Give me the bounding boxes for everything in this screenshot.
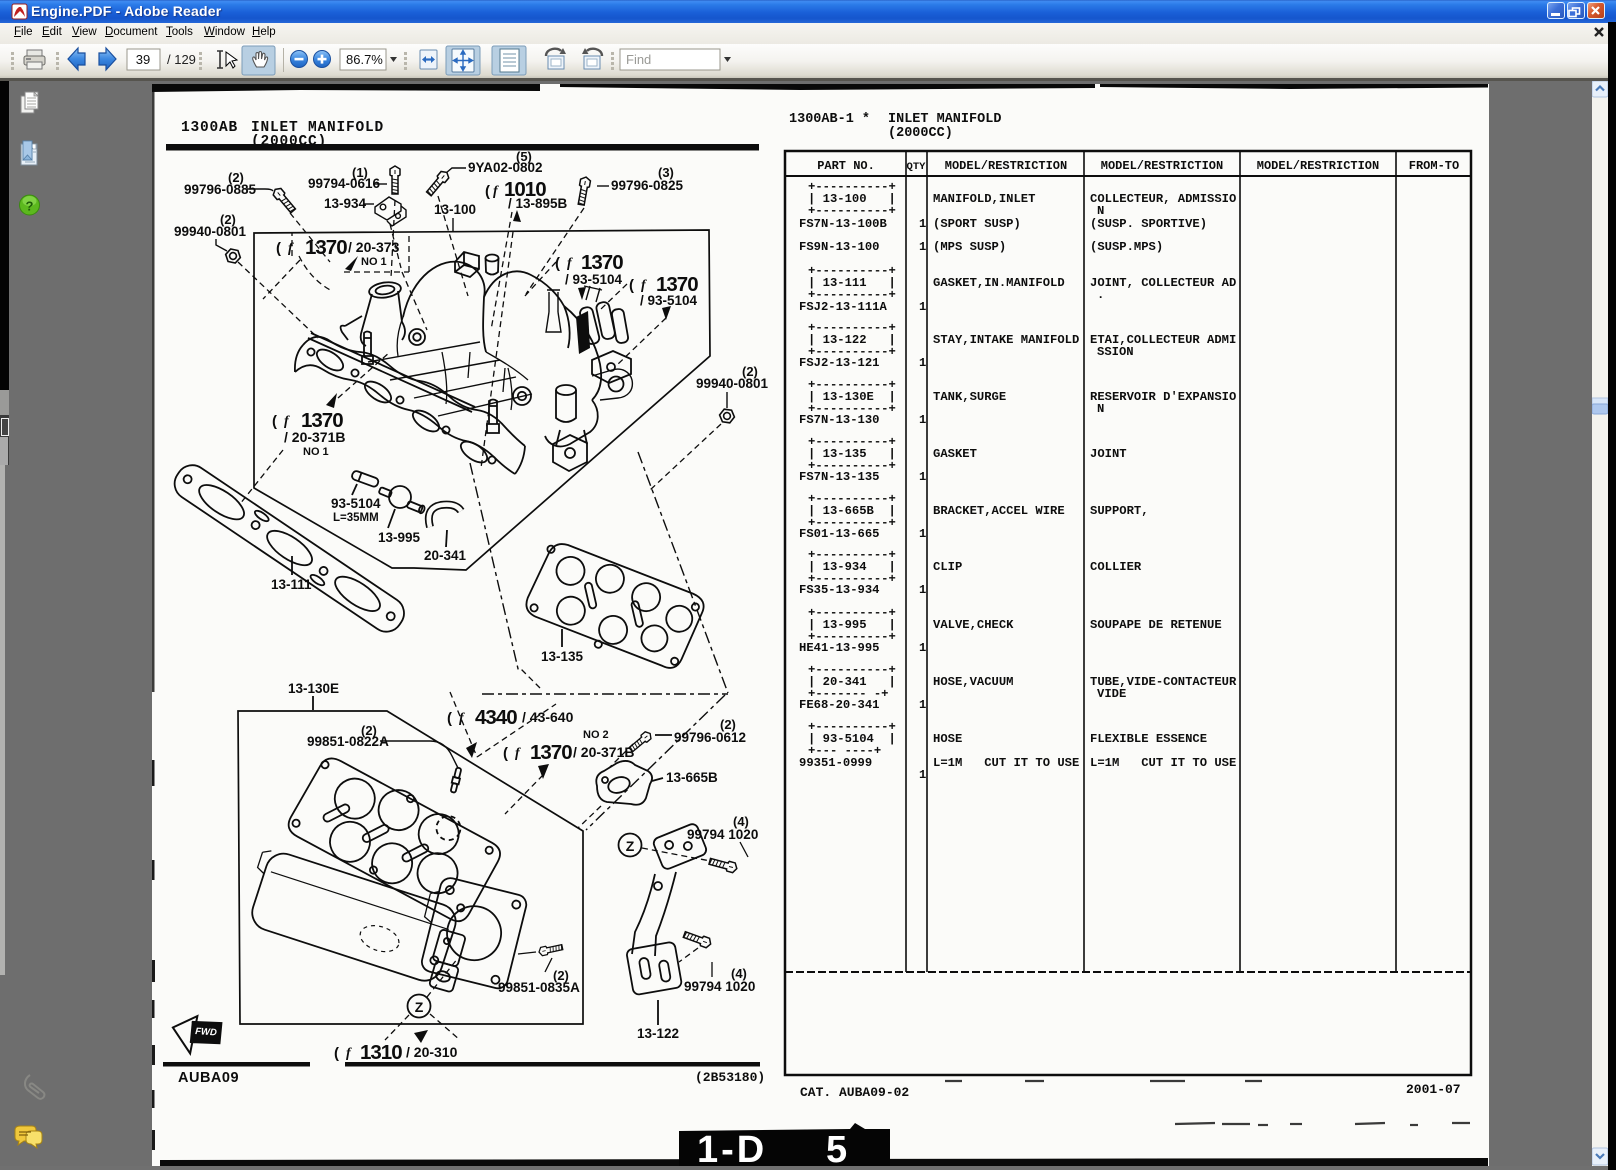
svg-text:FSJ2-13-121: FSJ2-13-121 — [799, 356, 879, 370]
svg-text:+----------+: +----------+ — [808, 204, 896, 218]
svg-text:BRACKET,ACCEL WIRE: BRACKET,ACCEL WIRE — [933, 504, 1065, 518]
svg-text:1370: 1370 — [581, 251, 623, 274]
svg-text:1: 1 — [919, 217, 926, 231]
svg-text:NO 1: NO 1 — [361, 256, 387, 268]
svg-text:JOINT, COLLECTEUR AD: JOINT, COLLECTEUR AD — [1090, 276, 1236, 290]
svg-text:13-135: 13-135 — [541, 649, 584, 664]
svg-text:FS7N-13-130: FS7N-13-130 — [799, 413, 879, 427]
svg-text:L=35MM: L=35MM — [333, 512, 379, 524]
svg-text:VIDE: VIDE — [1097, 687, 1126, 701]
svg-text:/ 13-895B: / 13-895B — [508, 196, 568, 211]
svg-text:1: 1 — [919, 300, 926, 314]
svg-text:COLLIER: COLLIER — [1090, 560, 1142, 574]
svg-text:1300AB: 1300AB — [181, 120, 238, 136]
svg-text:N: N — [1097, 204, 1104, 218]
svg-text:99851-0835A: 99851-0835A — [498, 980, 580, 995]
svg-text:(MPS SUSP): (MPS SUSP) — [933, 240, 1006, 254]
svg-text:(: ( — [503, 745, 508, 762]
svg-text:/ 20-310: / 20-310 — [406, 1044, 458, 1060]
svg-text:VALVE,CHECK: VALVE,CHECK — [933, 618, 1014, 632]
svg-text:MODEL/RESTRICTION: MODEL/RESTRICTION — [1257, 159, 1379, 173]
svg-text:9YA02-0802: 9YA02-0802 — [468, 160, 543, 175]
svg-text:FLEXIBLE ESSENCE: FLEXIBLE ESSENCE — [1090, 732, 1207, 746]
svg-text:1370: 1370 — [530, 741, 572, 764]
svg-text:MODEL/RESTRICTION: MODEL/RESTRICTION — [1101, 159, 1223, 173]
svg-text:Z: Z — [415, 999, 424, 1015]
svg-text:FS35-13-934: FS35-13-934 — [799, 583, 879, 597]
svg-text:(SUSP. SPORTIVE): (SUSP. SPORTIVE) — [1090, 217, 1207, 231]
svg-text:L=1M CUT IT TO USE: L=1M CUT IT TO USE — [1090, 756, 1236, 770]
svg-text:FS7N-13-135: FS7N-13-135 — [799, 470, 879, 484]
svg-text:STAY,INTAKE MANIFOLD: STAY,INTAKE MANIFOLD — [933, 333, 1079, 347]
svg-text:99796-0612: 99796-0612 — [674, 730, 746, 745]
svg-text:HOSE,VACUUM: HOSE,VACUUM — [933, 675, 1013, 689]
svg-text:SSION: SSION — [1097, 345, 1134, 359]
svg-text:1: 1 — [919, 641, 926, 655]
svg-text:f: f — [459, 711, 465, 726]
svg-text:/ 93-5104: / 93-5104 — [565, 272, 623, 287]
svg-text:4340: 4340 — [475, 706, 517, 729]
svg-text:/ 20-371B: / 20-371B — [284, 429, 345, 445]
svg-text:f: f — [567, 256, 573, 271]
svg-text:(SUSP.MPS): (SUSP.MPS) — [1090, 240, 1163, 254]
svg-text:1-D: 1-D — [697, 1129, 767, 1170]
svg-text:CLIP: CLIP — [933, 560, 962, 574]
svg-text:13-665B: 13-665B — [666, 770, 718, 785]
svg-text:1: 1 — [919, 413, 926, 427]
svg-text:RESERVOIR D'EXPANSIO: RESERVOIR D'EXPANSIO — [1090, 390, 1236, 404]
svg-text:13-122: 13-122 — [637, 1026, 679, 1041]
svg-text:(: ( — [276, 240, 281, 257]
svg-text:FS7N-13-100B: FS7N-13-100B — [799, 217, 887, 231]
svg-text:93-5104: 93-5104 — [331, 496, 381, 511]
svg-text:5: 5 — [826, 1129, 847, 1170]
svg-text:FE68-20-341: FE68-20-341 — [799, 698, 879, 712]
svg-text:1: 1 — [919, 768, 926, 782]
svg-text:1: 1 — [919, 470, 926, 484]
svg-text:(2B53180): (2B53180) — [695, 1070, 765, 1085]
svg-text:/ 93-5104: / 93-5104 — [640, 293, 698, 308]
svg-text:2001-07: 2001-07 — [1406, 1082, 1461, 1097]
svg-text:GASKET,IN.MANIFOLD: GASKET,IN.MANIFOLD — [933, 276, 1065, 290]
svg-text:FS01-13-665: FS01-13-665 — [799, 527, 879, 541]
svg-text:MODEL/RESTRICTION: MODEL/RESTRICTION — [945, 159, 1067, 173]
svg-text:f: f — [288, 241, 294, 256]
svg-text:INLET MANIFOLD: INLET MANIFOLD — [888, 112, 1001, 127]
svg-text:13-130E: 13-130E — [288, 681, 339, 696]
svg-text:f: f — [493, 184, 499, 199]
svg-text:99796-0825: 99796-0825 — [611, 178, 684, 193]
svg-text:(: ( — [629, 277, 634, 294]
svg-text:13-995: 13-995 — [378, 530, 421, 545]
svg-text:99940-0801: 99940-0801 — [696, 376, 769, 391]
svg-text:1300AB-1 *: 1300AB-1 * — [789, 112, 870, 127]
svg-text:13-100: 13-100 — [434, 202, 476, 217]
svg-text:/ 43-640: / 43-640 — [522, 709, 574, 725]
svg-text:1310: 1310 — [360, 1041, 402, 1064]
svg-text:1: 1 — [919, 583, 926, 597]
svg-text:NO 1: NO 1 — [303, 446, 329, 458]
svg-text:(2000CC): (2000CC) — [888, 126, 953, 141]
svg-text:SUPPORT,: SUPPORT, — [1090, 504, 1149, 518]
svg-text:1: 1 — [919, 698, 926, 712]
svg-text:(: ( — [447, 710, 452, 727]
svg-text:(: ( — [555, 255, 560, 272]
svg-text:COLLECTEUR, ADMISSIO: COLLECTEUR, ADMISSIO — [1090, 192, 1236, 206]
svg-text:99351-0999: 99351-0999 — [799, 756, 872, 770]
svg-text:Z: Z — [626, 838, 635, 854]
svg-text:1: 1 — [919, 240, 926, 254]
svg-text:f: f — [641, 278, 647, 293]
svg-text:FSJ2-13-111A: FSJ2-13-111A — [799, 300, 887, 314]
svg-text:99796-0885: 99796-0885 — [184, 182, 257, 197]
svg-text:SOUPAPE DE RETENUE: SOUPAPE DE RETENUE — [1090, 618, 1222, 632]
svg-text:1: 1 — [919, 356, 926, 370]
svg-text:FROM-TO: FROM-TO — [1409, 159, 1459, 173]
svg-text:JOINT: JOINT — [1090, 447, 1127, 461]
svg-text:PART NO.: PART NO. — [817, 159, 875, 173]
svg-text:AUBA09: AUBA09 — [178, 1070, 239, 1086]
svg-text:(: ( — [334, 1045, 339, 1062]
svg-text:13-111: 13-111 — [271, 577, 312, 592]
svg-text:GASKET: GASKET — [933, 447, 977, 461]
svg-text:HOSE: HOSE — [933, 732, 962, 746]
svg-text:MANIFOLD,INLET: MANIFOLD,INLET — [933, 192, 1035, 206]
svg-text:99940-0801: 99940-0801 — [174, 224, 247, 239]
svg-text:20-341: 20-341 — [424, 548, 467, 563]
svg-text:QTY: QTY — [907, 161, 927, 173]
svg-text:CAT. AUBA09-02: CAT. AUBA09-02 — [800, 1085, 909, 1100]
svg-text:f: f — [346, 1046, 352, 1061]
svg-text:1: 1 — [919, 527, 926, 541]
svg-text:.: . — [1097, 288, 1104, 302]
svg-text:99794 1020: 99794 1020 — [684, 979, 755, 994]
svg-text:99851-0822A: 99851-0822A — [307, 734, 389, 749]
svg-text:99794-0616: 99794-0616 — [308, 176, 381, 191]
svg-text:(: ( — [272, 413, 277, 430]
svg-text:f: f — [515, 746, 521, 761]
svg-text:13-934: 13-934 — [324, 196, 367, 211]
svg-text:FS9N-13-100: FS9N-13-100 — [799, 240, 879, 254]
svg-text:TANK,SURGE: TANK,SURGE — [933, 390, 1006, 404]
svg-text:HE41-13-995: HE41-13-995 — [799, 641, 879, 655]
svg-text:(SPORT SUSP): (SPORT SUSP) — [933, 217, 1021, 231]
svg-text:N: N — [1097, 402, 1104, 416]
svg-text:NO 2: NO 2 — [583, 729, 609, 741]
svg-text:FWD: FWD — [195, 1026, 217, 1038]
svg-text:L=1M CUT IT TO USE: L=1M CUT IT TO USE — [933, 756, 1079, 770]
svg-text:f: f — [284, 414, 290, 429]
svg-text:(: ( — [485, 183, 490, 200]
